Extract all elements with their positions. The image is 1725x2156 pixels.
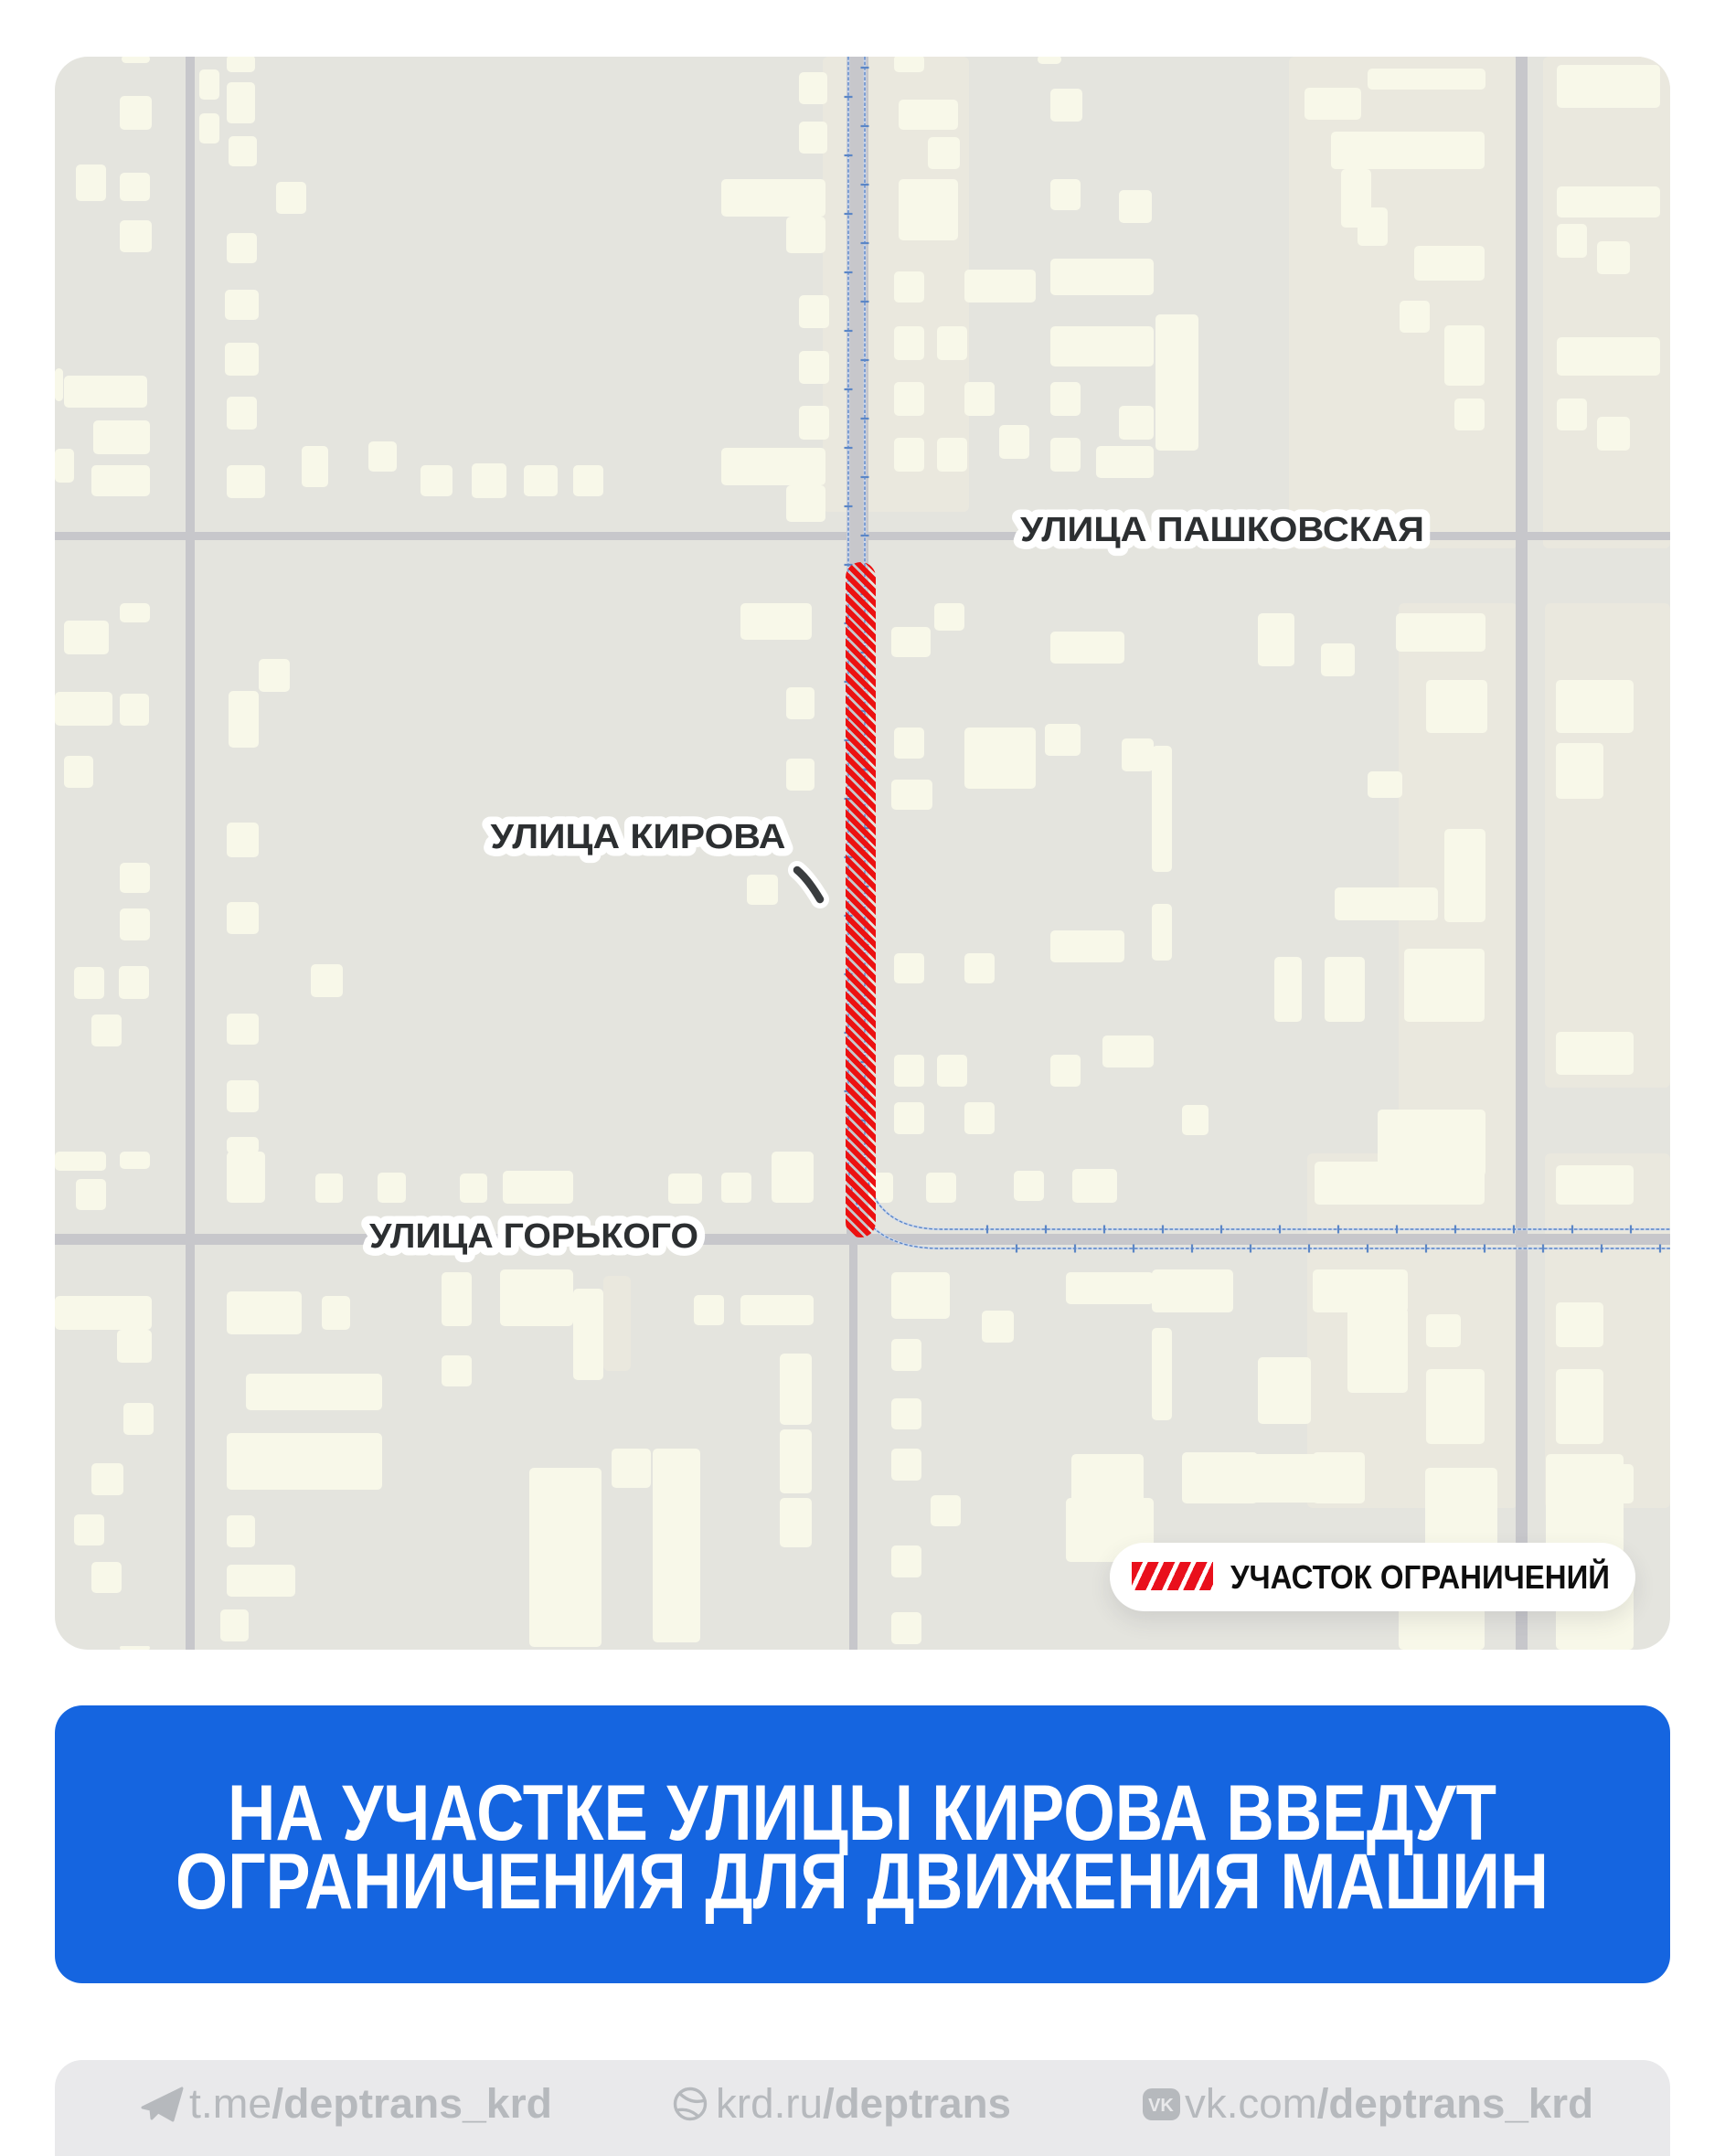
svg-text:УЧАСТОК ОГРАНИЧЕНИЙ: УЧАСТОК ОГРАНИЧЕНИЙ — [1230, 1557, 1610, 1596]
svg-text:krd.ru/deptrans: krd.ru/deptrans — [716, 2080, 1011, 2127]
svg-text:ОГРАНИЧЕНИЯ ДЛЯ ДВИЖЕНИЯ МАШИН: ОГРАНИЧЕНИЯ ДЛЯ ДВИЖЕНИЯ МАШИН — [176, 1838, 1549, 1926]
svg-text:УЛИЦА ПАШКОВСКАЯ: УЛИЦА ПАШКОВСКАЯ — [1020, 511, 1424, 549]
svg-text:УЛИЦА ГОРЬКОГО: УЛИЦА ГОРЬКОГО — [369, 1217, 698, 1256]
svg-text:t.me/deptrans_krd: t.me/deptrans_krd — [189, 2080, 552, 2127]
svg-text:VK: VK — [1148, 2096, 1174, 2116]
svg-text:УЛИЦА КИРОВА: УЛИЦА КИРОВА — [491, 818, 786, 856]
svg-text:vk.com/deptrans_krd: vk.com/deptrans_krd — [1185, 2080, 1593, 2127]
